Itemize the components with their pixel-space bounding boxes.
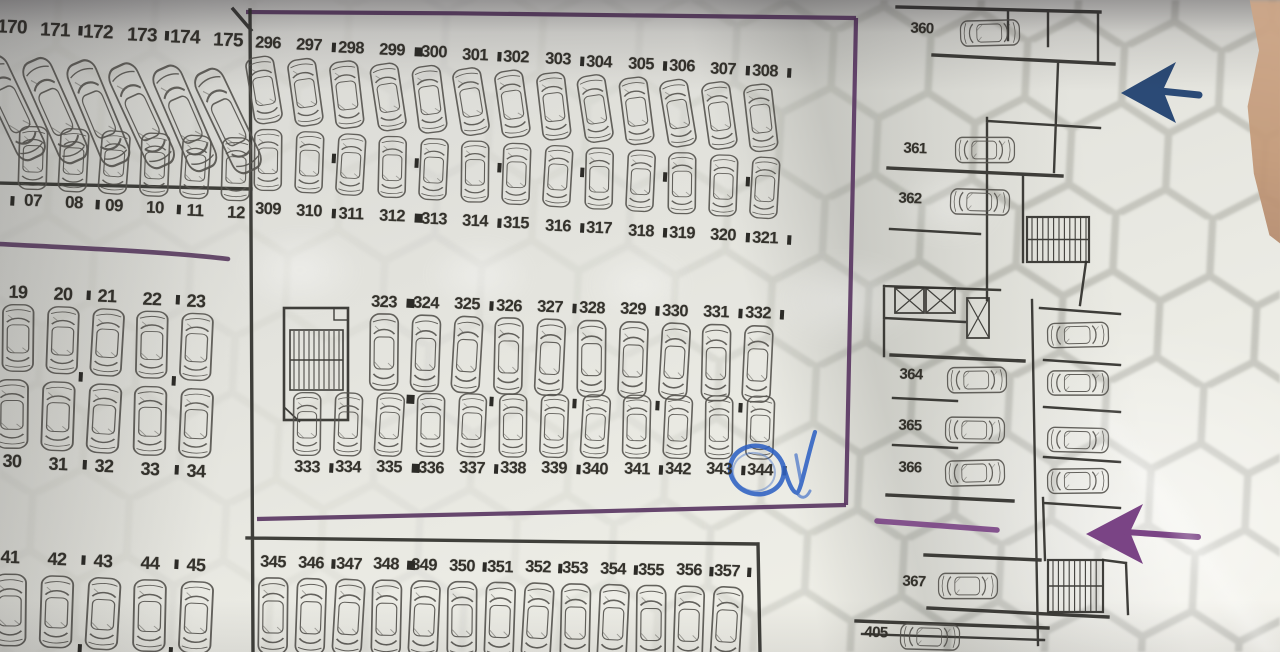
car-icon xyxy=(369,62,407,132)
separator-mark xyxy=(78,644,82,652)
space-label-309: 309 xyxy=(249,200,288,218)
space-label-313: 313 xyxy=(414,210,453,228)
separator-mark xyxy=(709,567,713,577)
car-icon xyxy=(105,60,178,172)
space-label-345: 345 xyxy=(254,553,293,571)
separator-mark xyxy=(78,26,82,36)
separator-mark xyxy=(165,31,169,41)
car-icon xyxy=(709,155,738,217)
separator-mark xyxy=(746,233,750,243)
space-label-348: 348 xyxy=(367,556,406,574)
car-icon xyxy=(1047,322,1108,348)
separator-marks xyxy=(10,26,791,652)
space-label-297: 297 xyxy=(290,37,329,55)
car-icon xyxy=(461,141,489,202)
car-icon xyxy=(371,580,402,652)
separator-mark xyxy=(659,465,663,475)
space-label-330: 330 xyxy=(655,302,694,320)
car-icon xyxy=(597,584,629,652)
car-icon xyxy=(336,133,367,195)
car-icon xyxy=(618,322,649,399)
car-icon xyxy=(41,382,75,451)
car-icon xyxy=(295,131,324,193)
space-label-347: 347 xyxy=(329,555,368,573)
car-icon xyxy=(743,83,778,152)
car-icon xyxy=(701,81,738,151)
separator-mark xyxy=(558,564,562,574)
car-icon xyxy=(536,72,571,141)
separator-mark xyxy=(406,299,414,308)
car-icon xyxy=(499,394,527,457)
space-label-326: 326 xyxy=(489,297,528,315)
space-label-308: 308 xyxy=(745,62,784,80)
space-label-340: 340 xyxy=(576,460,615,478)
separator-mark xyxy=(329,463,333,473)
car-icon xyxy=(619,76,655,146)
car-icon xyxy=(447,582,477,652)
car-icon xyxy=(374,393,405,457)
separator-mark xyxy=(497,218,501,228)
separator-mark xyxy=(782,466,786,476)
space-label-354: 354 xyxy=(594,560,633,578)
separator-mark xyxy=(655,306,659,316)
car-icon xyxy=(576,74,614,144)
space-label-44: 44 xyxy=(130,554,169,573)
space-label-32: 32 xyxy=(85,456,124,475)
separator-mark xyxy=(497,163,501,173)
space-label-367: 367 xyxy=(895,573,934,589)
car-icon xyxy=(18,126,48,189)
car-icon xyxy=(179,581,214,652)
separator-mark xyxy=(176,295,180,305)
car-icon xyxy=(668,153,696,214)
space-label-405: 405 xyxy=(857,624,896,640)
space-label-329: 329 xyxy=(614,301,653,319)
car-icon xyxy=(1048,371,1109,395)
car-icon xyxy=(494,69,531,139)
parking-plan-photo: 1701711721731741750708091011121920212223… xyxy=(0,0,1280,652)
floor-plan-linework xyxy=(0,0,1280,652)
car-icon xyxy=(408,580,440,652)
car-icon xyxy=(950,189,1009,216)
space-label-303: 303 xyxy=(538,50,577,68)
space-label-318: 318 xyxy=(621,222,660,240)
space-label-173: 173 xyxy=(122,25,161,45)
separator-mark xyxy=(79,372,83,382)
space-label-11: 11 xyxy=(176,201,215,219)
space-label-323: 323 xyxy=(365,293,404,311)
separator-mark xyxy=(10,196,14,206)
separator-mark xyxy=(407,561,415,570)
car-icon xyxy=(0,52,49,163)
car-icon xyxy=(85,577,121,650)
car-icon xyxy=(457,393,487,457)
car-icon xyxy=(956,137,1015,162)
car-icon xyxy=(0,574,26,646)
separator-mark xyxy=(572,304,576,314)
space-label-310: 310 xyxy=(290,203,329,221)
separator-mark xyxy=(738,309,742,319)
space-label-314: 314 xyxy=(456,212,495,230)
separator-mark xyxy=(787,235,791,245)
separator-mark xyxy=(580,57,584,67)
walls xyxy=(0,7,1128,652)
car-icon xyxy=(710,586,743,652)
car-icon xyxy=(484,582,515,652)
pen-check-mark xyxy=(783,432,815,493)
car-icon xyxy=(179,388,214,458)
space-label-344: 344 xyxy=(741,461,780,479)
separator-mark xyxy=(494,464,498,474)
space-label-175: 175 xyxy=(209,30,248,50)
car-icon xyxy=(58,128,89,192)
car-icon xyxy=(659,78,697,148)
space-label-343: 343 xyxy=(700,461,739,479)
space-label-296: 296 xyxy=(249,34,288,52)
space-label-346: 346 xyxy=(291,554,330,572)
car-icon xyxy=(577,320,606,396)
space-label-335: 335 xyxy=(370,459,409,477)
direction-arrow-blue xyxy=(1121,62,1199,123)
space-label-41: 41 xyxy=(0,547,29,566)
car-icon xyxy=(636,585,666,652)
car-icon xyxy=(750,157,781,219)
car-icon xyxy=(133,386,166,455)
elevator-shaft-icon xyxy=(967,298,989,338)
car-icon xyxy=(0,380,28,449)
car-icon xyxy=(673,586,704,652)
car-icon xyxy=(133,580,166,652)
space-label-33: 33 xyxy=(131,459,170,478)
space-label-352: 352 xyxy=(518,559,557,577)
pen-annotation xyxy=(725,432,815,500)
car-icon xyxy=(540,394,569,458)
stairs xyxy=(284,217,1103,612)
space-label-30: 30 xyxy=(0,451,31,470)
separator-mark xyxy=(331,559,335,569)
car-icon xyxy=(416,393,444,456)
space-label-361: 361 xyxy=(896,140,935,156)
car-icon xyxy=(494,318,524,395)
car-icon xyxy=(19,55,91,167)
car-icon xyxy=(221,137,251,200)
space-label-338: 338 xyxy=(494,460,533,478)
space-label-08: 08 xyxy=(54,194,93,212)
space-label-172: 172 xyxy=(79,22,118,42)
space-label-307: 307 xyxy=(704,60,743,78)
separator-mark xyxy=(787,68,791,78)
space-label-174: 174 xyxy=(165,27,204,47)
car-icon xyxy=(136,311,168,378)
space-label-302: 302 xyxy=(497,48,536,66)
space-label-45: 45 xyxy=(177,556,216,575)
separator-mark xyxy=(780,310,784,320)
space-label-350: 350 xyxy=(443,557,482,575)
space-label-316: 316 xyxy=(538,217,577,235)
space-label-331: 331 xyxy=(697,303,736,321)
car-icon xyxy=(378,136,406,197)
separator-mark xyxy=(580,223,584,233)
space-label-42: 42 xyxy=(37,549,76,568)
car-icon xyxy=(502,143,531,205)
space-label-325: 325 xyxy=(448,296,487,314)
space-label-365: 365 xyxy=(891,417,930,433)
car-icon xyxy=(254,129,282,190)
separator-mark xyxy=(332,43,336,53)
paper-fold-highlight xyxy=(1090,412,1280,652)
car-icon xyxy=(150,62,221,174)
separator-mark xyxy=(572,399,576,409)
car-icon xyxy=(370,314,399,390)
elevator-shaft-icon xyxy=(895,288,924,313)
watermark-ghost xyxy=(0,0,1280,652)
car-icon xyxy=(534,319,565,396)
car-icon xyxy=(332,579,365,652)
zone-boundary-purple xyxy=(0,12,997,530)
car-icon xyxy=(521,583,554,652)
separator-mark xyxy=(95,200,99,210)
car-icon xyxy=(947,367,1006,393)
separator-mark xyxy=(177,205,181,215)
separator-mark xyxy=(489,397,493,407)
separator-mark xyxy=(655,401,659,411)
car-icon xyxy=(46,306,79,374)
separator-mark xyxy=(741,466,745,476)
photo-vignette xyxy=(0,0,1280,652)
space-label-366: 366 xyxy=(891,459,930,475)
car-icon xyxy=(40,576,74,648)
space-label-362: 362 xyxy=(891,190,930,206)
space-label-21: 21 xyxy=(88,287,127,306)
car-icon xyxy=(622,395,650,458)
space-label-301: 301 xyxy=(456,46,495,64)
space-label-334: 334 xyxy=(329,459,368,477)
car-icon xyxy=(585,148,613,209)
car-icon xyxy=(258,578,288,652)
car-icon xyxy=(960,20,1019,47)
space-label-306: 306 xyxy=(663,57,702,75)
car-icon xyxy=(86,384,122,454)
car-icon xyxy=(98,130,131,195)
space-label-300: 300 xyxy=(414,44,453,62)
car-icon xyxy=(451,316,483,394)
car-icon xyxy=(287,57,324,127)
car-icon xyxy=(900,624,959,651)
separator-mark xyxy=(169,647,173,652)
space-label-319: 319 xyxy=(663,224,702,242)
space-label-315: 315 xyxy=(497,215,536,233)
car-icon xyxy=(742,325,773,402)
car-icon xyxy=(945,417,1004,443)
stairwell xyxy=(284,308,348,422)
car-icon xyxy=(412,65,448,135)
car-icon xyxy=(140,133,170,197)
staircase-icon xyxy=(1027,217,1089,262)
space-label-22: 22 xyxy=(132,289,171,308)
separator-mark xyxy=(576,465,580,475)
car-icon xyxy=(658,323,690,401)
space-label-23: 23 xyxy=(177,291,216,310)
space-label-351: 351 xyxy=(480,558,519,576)
space-label-09: 09 xyxy=(95,196,134,214)
space-label-332: 332 xyxy=(738,304,777,322)
space-label-299: 299 xyxy=(373,41,412,59)
space-label-311: 311 xyxy=(331,205,370,223)
separator-mark xyxy=(738,403,742,413)
separator-mark xyxy=(497,52,501,62)
car-icon xyxy=(90,308,124,376)
separator-mark xyxy=(81,555,85,565)
separator-mark xyxy=(174,559,178,569)
separator-mark xyxy=(746,66,750,76)
space-label-337: 337 xyxy=(452,459,491,477)
space-label-320: 320 xyxy=(704,227,743,245)
parked-cars xyxy=(0,20,1109,652)
space-label-298: 298 xyxy=(331,39,370,57)
photo-shading xyxy=(0,0,1280,652)
space-label-31: 31 xyxy=(39,454,78,473)
separator-mark xyxy=(634,565,638,575)
elevator-shafts xyxy=(895,288,989,338)
car-icon xyxy=(543,145,574,207)
car-icon xyxy=(2,305,33,372)
separator-mark xyxy=(663,228,667,238)
separator-mark xyxy=(414,47,422,56)
car-icon xyxy=(419,138,449,200)
elevator-shaft-icon xyxy=(926,288,955,313)
space-label-34: 34 xyxy=(177,461,216,480)
car-icon xyxy=(626,150,656,212)
space-label-360: 360 xyxy=(903,20,942,36)
separator-mark xyxy=(414,214,422,223)
separator-mark xyxy=(86,290,90,300)
space-label-10: 10 xyxy=(135,199,174,217)
car-icon xyxy=(705,396,733,459)
space-label-19: 19 xyxy=(0,282,37,301)
car-icon xyxy=(64,57,133,169)
car-icon xyxy=(452,67,490,137)
space-label-324: 324 xyxy=(406,295,445,313)
car-icon xyxy=(245,55,283,125)
separator-mark xyxy=(663,172,667,182)
separator-mark xyxy=(175,465,179,475)
car-icon xyxy=(191,65,265,176)
space-label-305: 305 xyxy=(621,55,660,73)
space-label-333: 333 xyxy=(288,458,327,476)
car-icon xyxy=(334,393,363,457)
space-label-339: 339 xyxy=(535,460,574,478)
car-icon xyxy=(580,394,611,458)
car-icon xyxy=(560,584,591,652)
space-label-07: 07 xyxy=(14,191,53,209)
space-label-170: 170 xyxy=(0,17,31,37)
space-label-341: 341 xyxy=(617,460,656,478)
space-label-356: 356 xyxy=(669,562,708,580)
space-label-355: 355 xyxy=(632,561,671,579)
separator-mark xyxy=(332,154,336,164)
photo-background-edge xyxy=(1232,0,1280,280)
space-label-312: 312 xyxy=(373,207,412,225)
car-icon xyxy=(746,396,775,460)
car-icon xyxy=(180,313,214,381)
space-label-304: 304 xyxy=(580,53,619,71)
car-icon xyxy=(663,395,693,459)
space-label-43: 43 xyxy=(84,551,123,570)
separator-mark xyxy=(406,395,414,404)
space-label-20: 20 xyxy=(43,284,82,303)
car-icon xyxy=(329,60,364,129)
space-label-317: 317 xyxy=(580,219,619,237)
cube-pattern-background xyxy=(0,0,1280,652)
space-label-353: 353 xyxy=(556,559,595,577)
separator-mark xyxy=(412,464,420,473)
separator-mark xyxy=(489,301,493,311)
space-label-357: 357 xyxy=(707,562,746,580)
car-icon xyxy=(701,324,731,401)
separator-mark xyxy=(580,168,584,178)
car-icon xyxy=(410,315,441,392)
car-icon xyxy=(939,573,998,598)
space-label-342: 342 xyxy=(658,460,697,478)
space-label-349: 349 xyxy=(405,556,444,574)
car-icon xyxy=(295,578,326,652)
space-label-336: 336 xyxy=(411,459,450,477)
space-label-364: 364 xyxy=(892,366,931,382)
separator-mark xyxy=(482,562,486,572)
space-label-12: 12 xyxy=(217,203,256,221)
car-icon xyxy=(945,460,1004,487)
separator-mark xyxy=(332,209,336,219)
separator-mark xyxy=(414,158,418,168)
separator-mark xyxy=(172,376,176,386)
separator-mark xyxy=(83,460,87,470)
separator-mark xyxy=(663,61,667,71)
pen-circle-344 xyxy=(725,440,789,500)
car-icon xyxy=(179,135,211,199)
space-label-171: 171 xyxy=(36,20,75,40)
space-label-328: 328 xyxy=(572,299,611,317)
separator-mark xyxy=(747,567,751,577)
car-icon xyxy=(293,393,321,456)
space-label-327: 327 xyxy=(531,298,570,316)
separator-mark xyxy=(746,177,750,187)
stall-labels: 1701711721731741750708091011121920212223… xyxy=(0,0,1280,652)
space-label-321: 321 xyxy=(745,229,784,247)
